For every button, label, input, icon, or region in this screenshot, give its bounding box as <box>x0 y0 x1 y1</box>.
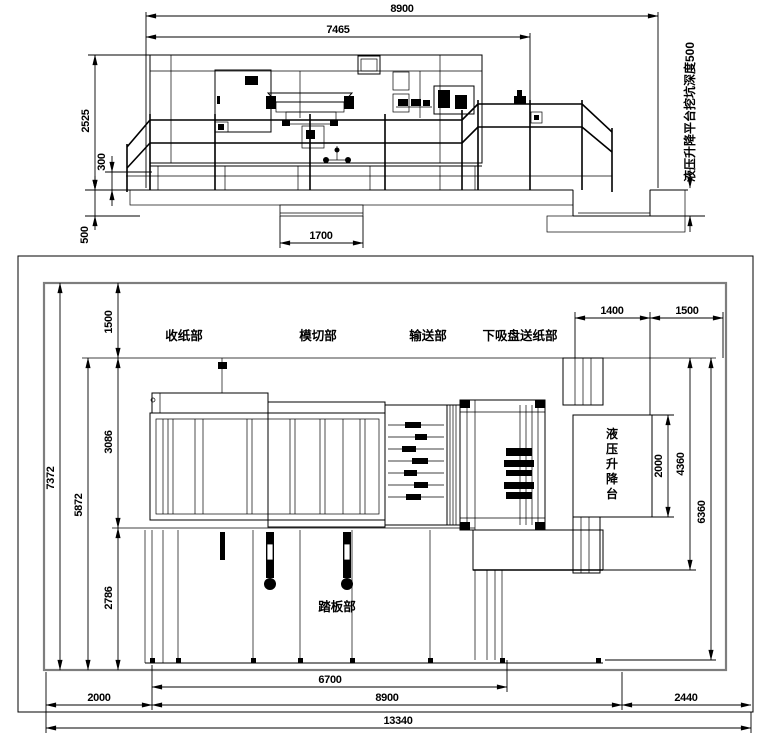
dim-machine-width: 5872 <box>73 493 85 516</box>
dim-right-b: 6360 <box>696 500 708 523</box>
machine-side-body <box>126 55 612 190</box>
lift-pit <box>547 190 705 232</box>
side-view: 8900 7465 2525 300 500 1700 液压升降平台挖坑深度50… <box>79 3 705 248</box>
safety-fence <box>127 90 612 192</box>
feeder-section <box>447 400 545 530</box>
feed-rollers <box>396 99 432 107</box>
feeder-lower-block <box>473 530 603 660</box>
dim-height: 2525 <box>80 109 92 132</box>
dim-machine-length-plan: 8900 <box>375 692 398 704</box>
lift-table-area: 液 压 升 降 台 <box>563 358 652 573</box>
plan-view: 液 压 升 降 台 <box>18 256 753 733</box>
control-box <box>245 76 258 85</box>
lift-table-label: 液 压 升 降 台 <box>606 426 619 501</box>
plan-dimensions: 7372 5872 1500 3086 2786 1400 1500 2000 … <box>45 283 751 733</box>
dim-total-length-plan: 13340 <box>383 715 412 727</box>
pedal-left <box>264 532 276 590</box>
dim-machine-length: 7465 <box>326 24 349 36</box>
pedal-section <box>145 530 603 663</box>
pedal-right <box>341 532 353 590</box>
lift-pit-note: 液压升降平台挖坑深度500 <box>682 42 697 182</box>
dim-lift-a: 1400 <box>600 305 623 317</box>
svg-text:升: 升 <box>606 456 618 471</box>
dim-site-width: 7372 <box>45 466 57 489</box>
die-cutting-section <box>268 402 385 527</box>
label-delivery-section: 收纸部 <box>165 328 203 343</box>
dim-total-length: 8900 <box>390 3 413 15</box>
sight-window <box>358 56 380 74</box>
dim-pit-depth: 500 <box>79 226 91 244</box>
dim-rear-margin: 1500 <box>103 310 115 333</box>
ground-hatch <box>85 190 705 232</box>
dim-right-a: 4360 <box>675 452 687 475</box>
dim-lift-b: 1500 <box>675 305 698 317</box>
dim-lift-length: 2000 <box>653 454 665 477</box>
dim-pit-width: 1700 <box>309 230 332 242</box>
svg-text:降: 降 <box>606 471 619 486</box>
svg-text:液: 液 <box>606 426 618 441</box>
label-feeder-section: 下吸盘送纸部 <box>482 328 558 343</box>
conveying-section <box>385 405 447 525</box>
dim-base-height: 300 <box>96 153 108 171</box>
dim-pedal-length: 6700 <box>318 674 341 686</box>
label-die-cutting-section: 模切部 <box>299 328 337 343</box>
label-pedal-section: 踏板部 <box>318 599 356 614</box>
cabinet-door <box>215 70 271 132</box>
dim-left-margin: 2000 <box>87 692 110 704</box>
dim-machine-frame: 3086 <box>103 430 115 453</box>
svg-text:压: 压 <box>606 442 618 456</box>
pump-unit <box>514 96 526 104</box>
svg-text:台: 台 <box>606 486 618 501</box>
label-conveying-section: 输送部 <box>409 328 447 343</box>
dim-front-zone: 2786 <box>103 586 115 609</box>
machine-installation-drawing: 8900 7465 2525 300 500 1700 液压升降平台挖坑深度50… <box>0 0 768 743</box>
dim-right-margin: 2440 <box>674 692 697 704</box>
